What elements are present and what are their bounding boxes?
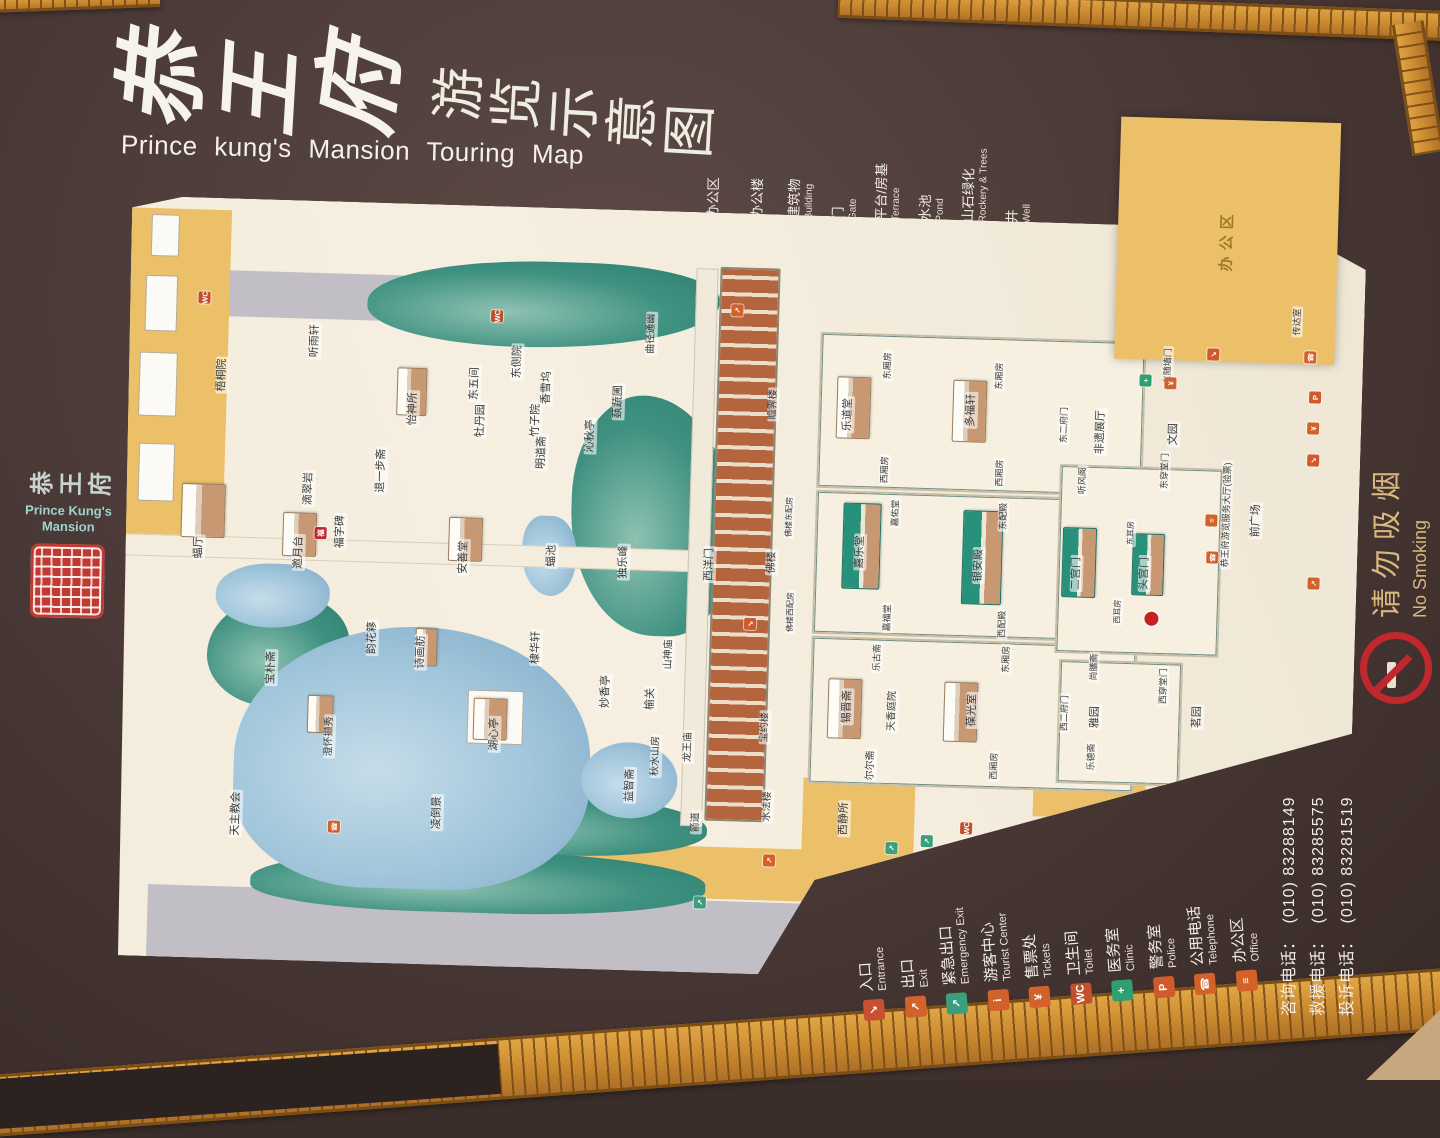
map-entrance-icon: ↘ (1307, 454, 1319, 466)
map-toilet-icon: WC (198, 291, 210, 303)
tickets-icon: ¥ (1028, 986, 1051, 1009)
map-exit-icon: ↗ (731, 304, 743, 316)
map-office-icon: ≡ (1205, 514, 1217, 526)
exit-icon: ↗ (904, 995, 927, 1018)
map-toilet-icon: WC (491, 310, 503, 322)
map-emergency-icon: ↗ (885, 842, 897, 854)
map-police-icon: P (1309, 391, 1321, 403)
no-smoking-icon (1360, 632, 1432, 704)
fu-seal-icon (30, 543, 105, 618)
tourist-center-icon: i (986, 989, 1009, 1012)
entrance-icon: ↘ (862, 999, 885, 1022)
no-smoking-en: No Smoking (1410, 462, 1431, 618)
map-icons: WCWC↗↘↗↗↗↗WC☎+¥↘☎P¥↘≡☎↗福 (110, 75, 1371, 991)
no-smoking-sign: 请勿吸烟 No Smoking (1350, 382, 1440, 704)
map-emergency-icon: ↗ (921, 835, 933, 847)
logo-english: Prince Kung's Mansion (20, 502, 117, 536)
map-tickets-icon: ¥ (1164, 377, 1176, 389)
touring-map: 梧桐院蝠厅宝朴斋邀月台滴翠岩澄怀撷秀福字碑韵花簃退一步斋怡神所诗画舫凌倒景听雨轩… (110, 75, 1371, 991)
logo-characters: 恭王府 (21, 465, 118, 502)
map-exit-icon: ↗ (1307, 577, 1319, 589)
border-right (1392, 20, 1440, 155)
map-tickets-icon: ¥ (1307, 422, 1319, 434)
map-telephone-icon: ☎ (1304, 351, 1316, 363)
map-exit-icon: ↗ (763, 854, 775, 866)
emergency-exit-icon: ↗ (945, 992, 968, 1015)
no-smoking-zh: 请勿吸烟 (1362, 462, 1406, 618)
map-entrance-icon: ↘ (744, 618, 756, 630)
logo-char: 府 (80, 472, 115, 497)
map-fu-icon: 福 (314, 527, 326, 539)
map-telephone-icon: ☎ (328, 820, 340, 832)
map-toilet-icon: WC (960, 822, 972, 834)
map-emergency-icon: ↗ (694, 896, 706, 908)
sign-board: 恭 王 府 游 览 示 意 图 Prince kung's Mansion To… (0, 0, 1440, 1080)
border-top (838, 0, 1440, 42)
map-entrance-icon: ↘ (1207, 348, 1219, 360)
toilet-icon: WC (1069, 982, 1092, 1005)
mansion-logo: 恭王府 Prince Kung's Mansion (19, 465, 118, 618)
map-telephone-icon: ☎ (1206, 551, 1218, 563)
map-clinic-icon: + (1139, 374, 1151, 386)
